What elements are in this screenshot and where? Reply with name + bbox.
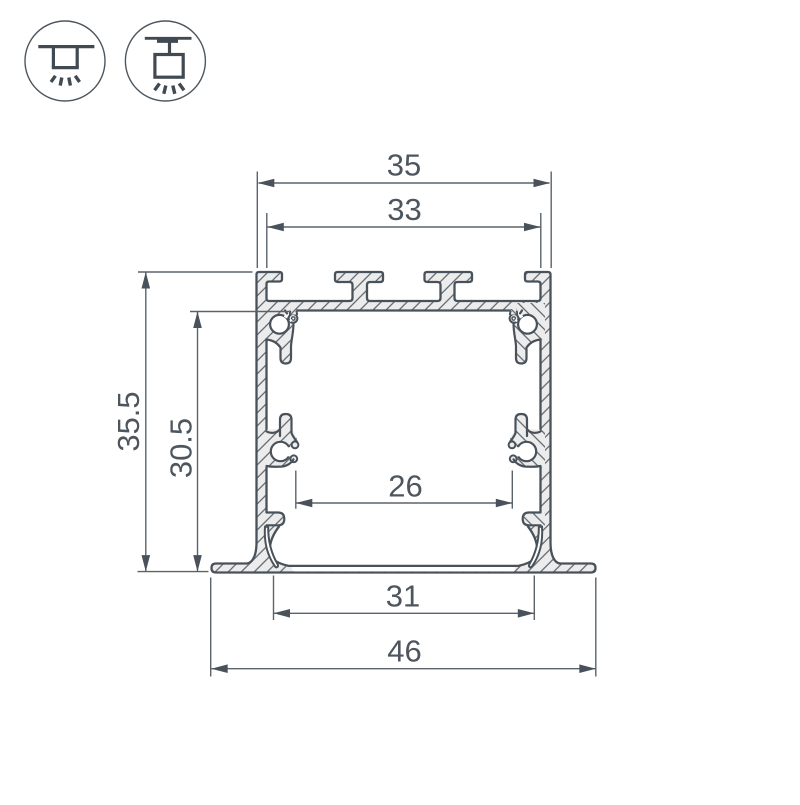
svg-text:35.5: 35.5 [111, 391, 146, 451]
svg-text:31: 31 [386, 579, 420, 614]
svg-text:26: 26 [388, 469, 422, 504]
svg-text:33: 33 [387, 192, 421, 227]
svg-text:30.5: 30.5 [164, 418, 199, 478]
svg-text:46: 46 [387, 634, 421, 669]
svg-text:35: 35 [387, 148, 421, 183]
